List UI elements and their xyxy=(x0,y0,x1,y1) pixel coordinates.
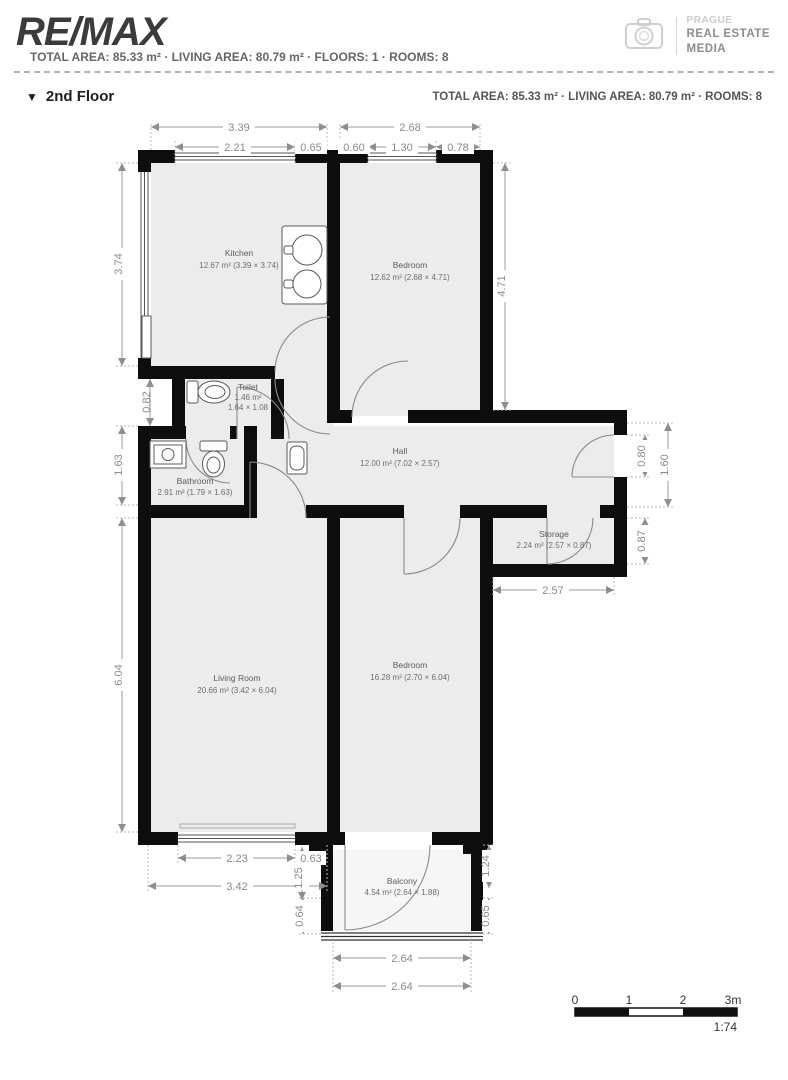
hall-details: 12.00 m² (7.02 × 2.57) xyxy=(360,459,440,468)
bedroom-bottom-label: Bedroom xyxy=(393,660,428,670)
dim-top-221: 2.21 xyxy=(224,142,245,154)
bedroom-top-details: 12.62 m² (2.68 × 4.71) xyxy=(370,273,450,282)
dim-right-257: 2.57 xyxy=(542,585,563,597)
media-logo-line2: REAL ESTATE xyxy=(687,27,770,41)
scale-ratio: 1:74 xyxy=(714,1020,738,1034)
balcony-railing xyxy=(321,931,483,941)
dim-left-163: 1.63 xyxy=(113,454,125,475)
dim-bot-063: 0.63 xyxy=(300,853,321,865)
kitchen-details: 12.67 m² (3.39 × 3.74) xyxy=(199,261,279,270)
dim-right-080: 0.80 xyxy=(636,445,648,466)
dim-top-065: 0.65 xyxy=(300,142,321,154)
balcony-label: Balcony xyxy=(387,876,418,886)
media-logo: PRAGUE REAL ESTATE MEDIA xyxy=(622,14,770,57)
washing-machine-icon xyxy=(150,441,186,468)
bedroom-top-label: Bedroom xyxy=(393,260,428,270)
dim-bal-264b: 2.64 xyxy=(391,981,412,993)
dim-right-087: 0.87 xyxy=(636,530,648,551)
kitchen-sink-icon xyxy=(282,226,327,304)
collapse-triangle-icon[interactable]: ▼ xyxy=(26,90,38,104)
dim-bot-125: 1.25 xyxy=(293,867,305,888)
scale-2: 2 xyxy=(680,993,687,1007)
bathroom-details: 2.91 m² (1.79 × 1.63) xyxy=(158,488,233,497)
scale-bar: 0 1 2 3m 1:74 xyxy=(572,993,742,1034)
room-bedroom-top xyxy=(334,156,486,416)
camera-icon xyxy=(622,14,666,57)
balcony-details: 4.54 m² (2.64 × 1.88) xyxy=(365,888,440,897)
living-label: Living Room xyxy=(213,673,260,683)
bathroom-label: Bathroom xyxy=(177,476,214,486)
dim-top-130: 1.30 xyxy=(391,142,412,154)
kitchen-label: Kitchen xyxy=(225,248,254,258)
floor-plan: Kitchen 12.67 m² (3.39 × 3.74) Bedroom 1… xyxy=(0,0,788,1080)
entrance-opening xyxy=(614,435,627,477)
dim-right-471: 4.71 xyxy=(496,275,508,296)
bedroom-bottom-details: 16.28 m² (2.70 × 6.04) xyxy=(370,673,450,682)
dim-top-339: 3.39 xyxy=(228,122,249,134)
media-logo-line3: MEDIA xyxy=(687,42,770,56)
media-logo-line1: PRAGUE xyxy=(687,15,770,28)
toilet-size: 1.64 × 1.08 xyxy=(228,403,269,412)
floor-header: ▼ 2nd Floor TOTAL AREA: 85.33 m² · LIVIN… xyxy=(26,88,762,105)
dim-left-374: 3.74 xyxy=(113,253,125,274)
dim-left-604: 6.04 xyxy=(113,664,125,685)
living-bottom-window xyxy=(178,832,295,845)
dim-bot-223: 2.23 xyxy=(226,853,247,865)
toilet-label: Toilet xyxy=(238,382,258,392)
scale-1: 1 xyxy=(626,993,633,1007)
dim-top-060: 0.60 xyxy=(343,142,364,154)
toilet-area: 1.46 m² xyxy=(234,393,261,402)
bathroom-toilet-icon xyxy=(200,441,227,477)
dim-bal-065: 0.65 xyxy=(480,905,492,926)
dim-top-078: 0.78 xyxy=(447,142,468,154)
scale-3m: 3m xyxy=(725,993,742,1007)
scale-0: 0 xyxy=(572,993,579,1007)
kitchen-radiator xyxy=(142,316,151,358)
dim-right-160: 1.60 xyxy=(659,454,671,475)
floor-stats: TOTAL AREA: 85.33 m² · LIVING AREA: 80.7… xyxy=(432,91,762,103)
hall-pocket xyxy=(278,372,334,426)
media-logo-divider xyxy=(676,17,677,55)
storage-label: Storage xyxy=(539,529,569,539)
living-details: 20.66 m² (3.42 × 6.04) xyxy=(197,686,277,695)
toilet-fixture-icon xyxy=(187,381,230,403)
storage-details: 2.24 m² (2.57 × 0.87) xyxy=(517,541,592,550)
remax-logo: RE/MAX xyxy=(16,10,166,55)
scale-seg-3 xyxy=(683,1008,737,1016)
balcony-door-opening xyxy=(345,832,432,845)
dim-bal-124: 1.24 xyxy=(480,855,492,876)
dim-bal-264a: 2.64 xyxy=(391,953,412,965)
dim-bal-064: 0.64 xyxy=(294,905,306,926)
hall-sink-icon xyxy=(287,442,307,474)
hall-label: Hall xyxy=(393,446,408,456)
dim-top-268: 2.68 xyxy=(399,122,420,134)
scale-seg-1 xyxy=(575,1008,629,1016)
dim-bot-342: 3.42 xyxy=(226,881,247,893)
floor-title: 2nd Floor xyxy=(46,88,114,105)
dim-left-082: 0.82 xyxy=(141,391,153,412)
